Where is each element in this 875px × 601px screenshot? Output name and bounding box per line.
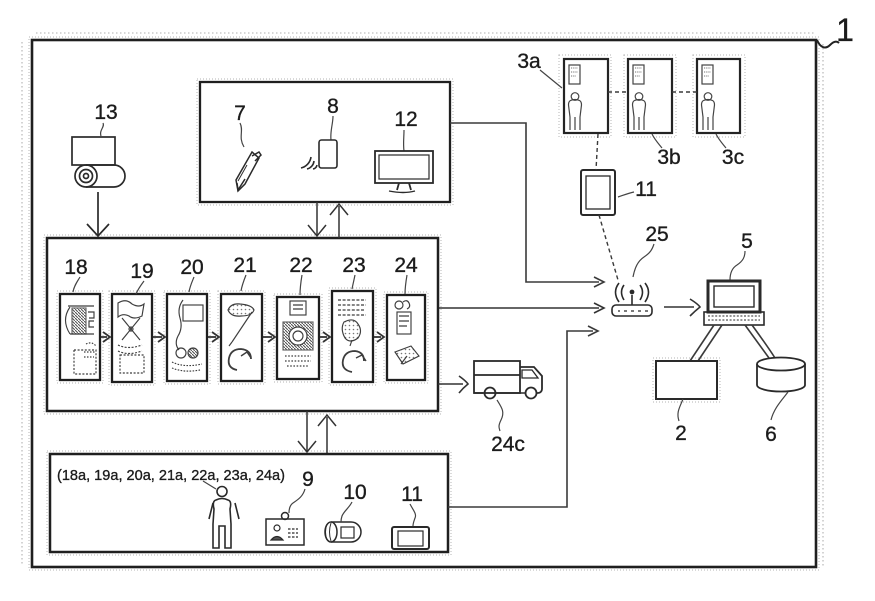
svg-text:1: 1: [836, 12, 854, 48]
svg-text:24c: 24c: [491, 433, 525, 456]
svg-text:12: 12: [394, 108, 417, 131]
svg-text:3b: 3b: [657, 146, 680, 169]
svg-text:13: 13: [94, 101, 117, 124]
svg-text:21: 21: [233, 254, 256, 277]
svg-text:3c: 3c: [722, 146, 744, 169]
svg-text:3a: 3a: [517, 50, 541, 73]
svg-text:20: 20: [180, 256, 203, 279]
svg-text:11: 11: [635, 178, 657, 201]
svg-text:23: 23: [342, 254, 365, 277]
svg-text:19: 19: [130, 260, 153, 283]
svg-text:10: 10: [343, 481, 366, 504]
svg-text:25: 25: [645, 223, 668, 246]
svg-text:2: 2: [675, 422, 687, 445]
svg-text:18: 18: [64, 256, 87, 279]
svg-text:22: 22: [289, 254, 312, 277]
svg-text:7: 7: [234, 102, 246, 125]
svg-text:6: 6: [765, 423, 777, 446]
svg-text:8: 8: [327, 95, 339, 118]
svg-text:(18a, 19a, 20a, 21a, 22a, 23a,: (18a, 19a, 20a, 21a, 22a, 23a, 24a): [57, 467, 285, 484]
svg-text:9: 9: [302, 468, 314, 491]
svg-text:24: 24: [394, 254, 418, 277]
svg-text:5: 5: [741, 230, 753, 253]
svg-text:11: 11: [401, 483, 423, 506]
